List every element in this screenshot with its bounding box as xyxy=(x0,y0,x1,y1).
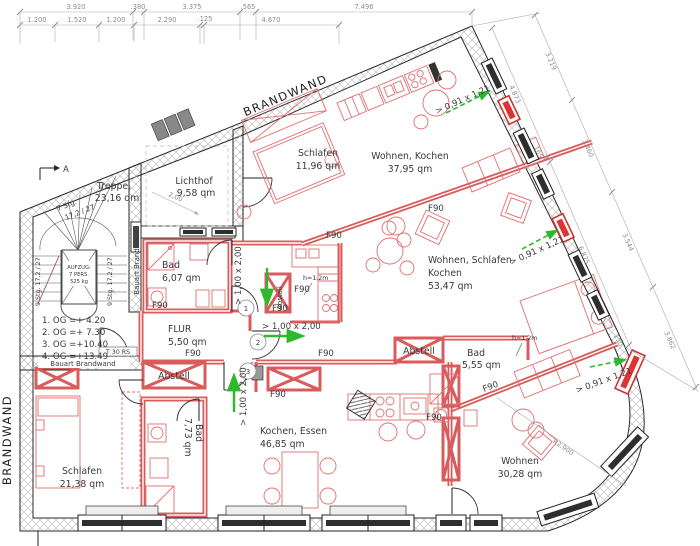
floor-plan-svg: AUFZUG: 7 PERS. 525 kg xyxy=(0,0,700,546)
dim-top: 7.496 xyxy=(355,3,374,11)
wohnen-c-label: Wohnen xyxy=(501,456,539,467)
dim-top: 3.375 xyxy=(183,3,202,11)
door-3-size-label: > 1,00 x 2,00 xyxy=(239,367,249,426)
dim-top: .565 xyxy=(241,3,256,11)
wohnen-a-label: Wohnen, Kochen xyxy=(371,151,449,162)
schlafen-a-label: Schlafen xyxy=(298,148,338,159)
elevator-label: AUFZUG: xyxy=(67,265,91,271)
floor-plan: AUFZUG: 7 PERS. 525 kg xyxy=(0,0,700,546)
kochen-c-label: Kochen, Essen xyxy=(260,426,327,437)
stair-flight-left: 9 Stg. 17,2 / 27 xyxy=(35,257,42,306)
f90-label: F90 xyxy=(185,349,201,359)
door-1-size-label: > 1,00 x 2,00 xyxy=(234,246,244,305)
studio-kitchen xyxy=(292,245,340,322)
f90-label: F90 xyxy=(318,349,334,359)
door-2-size-label: > 1,00 x 2,00 xyxy=(262,322,321,332)
f90-label: F90 xyxy=(428,204,444,214)
dim-top: .380 xyxy=(131,3,146,11)
lichthof-label: Lichthof xyxy=(175,176,213,187)
bad-a-label: Bad xyxy=(162,260,180,271)
schlafen-a-area: 11,96 qm xyxy=(296,161,341,172)
kochen-c-area: 46,85 qm xyxy=(260,439,305,450)
dim-right: 3.544 xyxy=(620,232,635,253)
schlafen-c-area: 21,38 qm xyxy=(60,479,105,490)
studio-area: 53,47 qm xyxy=(428,281,473,292)
f90-label: F90 xyxy=(270,390,286,400)
stair-flight-right: 9 Stg. 17,2 / 27 xyxy=(107,257,114,306)
f90-label: F90 xyxy=(326,231,342,241)
dim-top: 2.290 xyxy=(158,16,177,24)
studio-label-1: Wohnen, Schlafen xyxy=(428,255,512,266)
bauart-brandwand-vertical: Bauart Brandwand xyxy=(133,229,141,294)
level-1: 1. OG =+ 4.20 xyxy=(42,316,105,326)
level-3: 3. OG =+10.40 xyxy=(42,340,108,350)
radius-label: R2.900 xyxy=(551,437,575,457)
bad-b-label: Bad xyxy=(467,348,485,359)
brandwand-left-label: BRANDWAND xyxy=(0,395,14,485)
t30rs-label: T 30 RS xyxy=(105,349,130,356)
dim-top: 4.670 xyxy=(262,16,281,24)
bad-c-area: 7,73 qm xyxy=(182,418,193,457)
bad-c-label: Bad xyxy=(193,424,204,442)
section-label: A xyxy=(63,165,69,175)
wardrobe-blocks xyxy=(151,109,195,141)
parapet-label-bad-b: h=1.2m xyxy=(512,335,537,342)
dim-top: 1.520 xyxy=(68,16,87,24)
elevator-weight: 525 kg xyxy=(70,279,88,285)
lichthof-right-wall xyxy=(233,126,243,226)
treppe-label: Treppe, xyxy=(96,181,131,192)
escape-window-arrow-low-icon xyxy=(590,360,624,367)
wohnen-c-door xyxy=(452,488,478,514)
dim-right: 3.219 xyxy=(543,51,558,72)
schlafen-a-door xyxy=(243,178,272,207)
dimension-lines-top: 3.920 .380 3.375 .565 7.496 1.200 1.520 … xyxy=(17,3,475,44)
f90-label: F90 xyxy=(426,413,442,423)
parapet-label-kitchen: h=1.2m xyxy=(303,275,328,282)
bad-a-area: 6,07 qm xyxy=(162,273,201,284)
wohnen-c-furniture xyxy=(512,350,580,461)
dim-top: 1.200 xyxy=(28,16,47,24)
dim-top: 1.200 xyxy=(107,16,126,24)
wohnen-a-area: 37,95 qm xyxy=(388,164,433,175)
dim-right: 3.460 xyxy=(580,138,595,159)
wohnen-c-area: 30,28 qm xyxy=(498,469,543,480)
bad-b-area: 5,55 qm xyxy=(462,360,501,371)
escape-window-label-mid: > 0,91 x 1,21 xyxy=(508,235,566,268)
door-2-number: 2 xyxy=(256,339,260,347)
f90-label: F90 xyxy=(152,301,168,311)
treppe-area: 23,16 qm xyxy=(95,193,140,204)
f90-label: F90 xyxy=(272,304,288,314)
door-1-number: 1 xyxy=(244,305,248,313)
dim-top: .125 xyxy=(198,15,213,23)
escape-window-label-top: > 0,91 x 1,21 xyxy=(434,84,492,117)
studio-label-2: Kochen xyxy=(428,268,462,279)
abstell-c-label: Abstell xyxy=(158,371,190,382)
bad-c-fixtures xyxy=(146,424,174,514)
abstell-b-label: Abstell xyxy=(403,346,435,357)
schlafen-c-label: Schlafen xyxy=(62,466,102,477)
level-2: 2. OG =+ 7.30 xyxy=(42,328,105,338)
dim-right: 3.862 xyxy=(662,330,677,351)
level-4: 4. OG =+13.49 xyxy=(42,352,108,362)
elevator: AUFZUG: 7 PERS. 525 kg xyxy=(62,250,96,304)
flur-label: FLUR xyxy=(168,324,192,335)
elevator-capacity: 7 PERS. xyxy=(69,272,89,278)
dim-top: 3.920 xyxy=(67,3,86,11)
flur-area: 5,50 qm xyxy=(168,337,207,348)
